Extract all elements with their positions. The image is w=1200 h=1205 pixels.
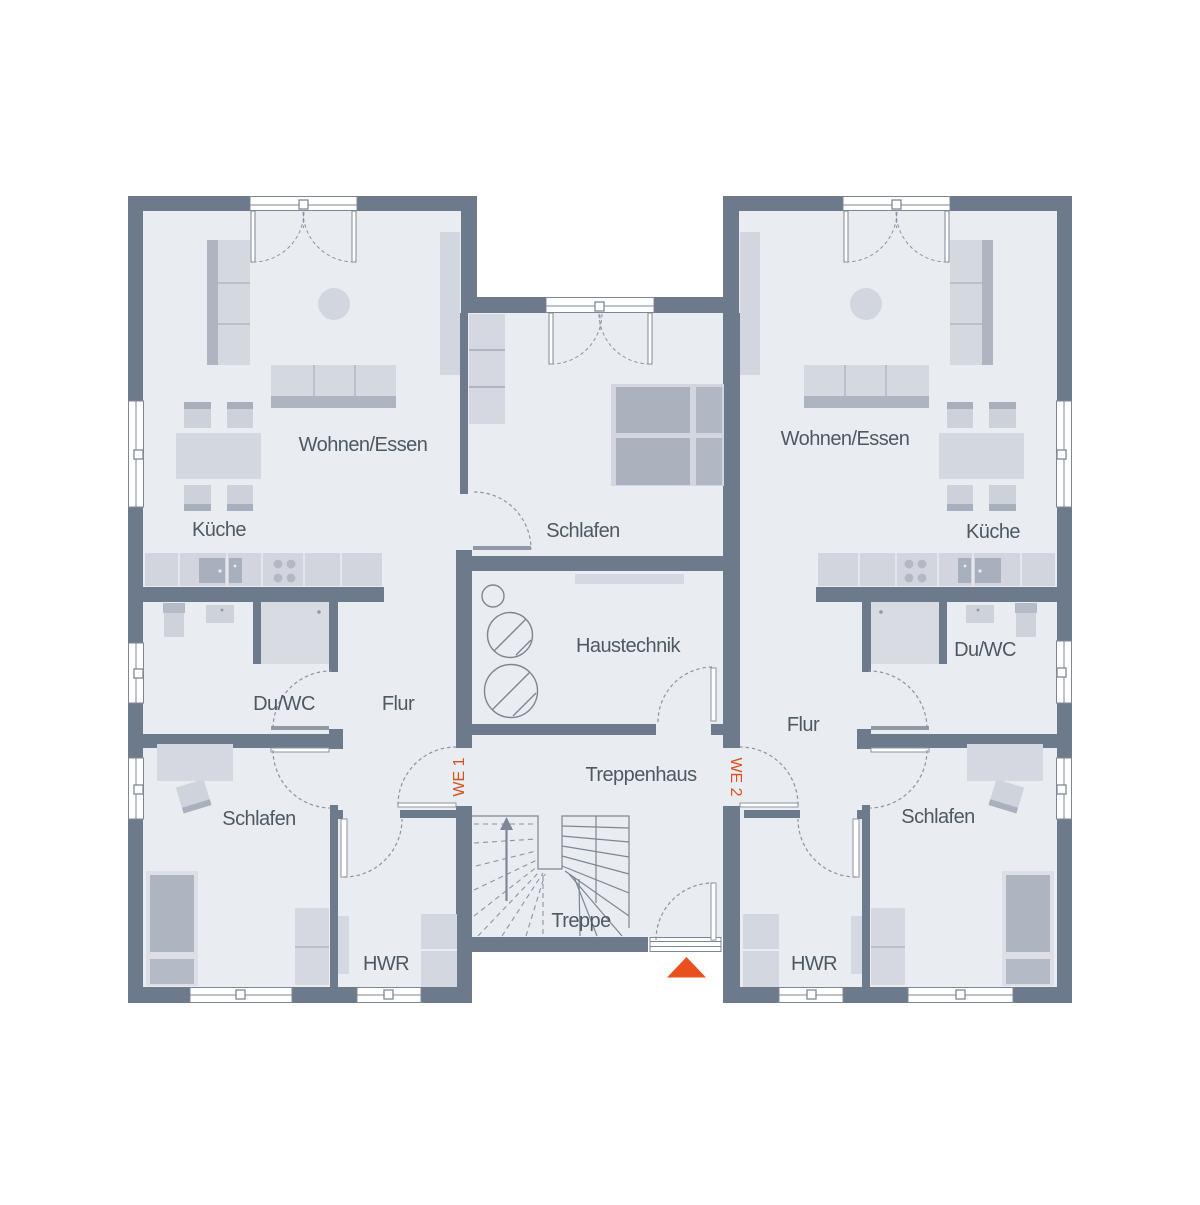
- svg-text:HWR: HWR: [363, 953, 409, 975]
- svg-text:Wohnen/Essen: Wohnen/Essen: [781, 428, 910, 450]
- svg-text:Treppenhaus: Treppenhaus: [585, 764, 697, 786]
- svg-text:Schlafen: Schlafen: [901, 806, 974, 828]
- svg-text:Schlafen: Schlafen: [222, 808, 295, 830]
- svg-text:Wohnen/Essen: Wohnen/Essen: [299, 434, 428, 456]
- svg-text:WE 1: WE 1: [451, 757, 468, 796]
- svg-text:HWR: HWR: [791, 953, 837, 975]
- svg-text:Küche: Küche: [192, 519, 246, 541]
- svg-text:WE 2: WE 2: [727, 757, 744, 796]
- svg-text:Haustechnik: Haustechnik: [576, 635, 682, 657]
- svg-text:Küche: Küche: [966, 521, 1020, 543]
- svg-text:Du/WC: Du/WC: [253, 693, 315, 715]
- svg-text:Flur: Flur: [382, 693, 415, 715]
- svg-text:Schlafen: Schlafen: [546, 520, 619, 542]
- svg-text:Treppe: Treppe: [551, 910, 611, 932]
- svg-text:Flur: Flur: [787, 714, 820, 736]
- svg-text:Du/WC: Du/WC: [954, 639, 1016, 661]
